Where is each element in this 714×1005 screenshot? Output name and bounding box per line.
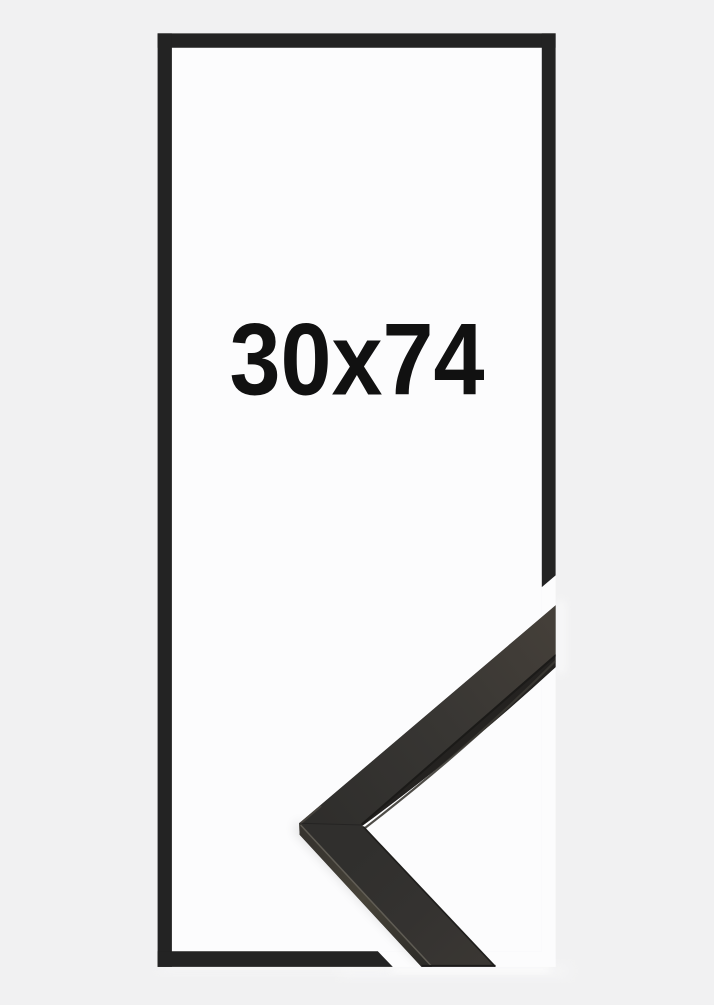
svg-text:30x74: 30x74 [230,302,485,417]
